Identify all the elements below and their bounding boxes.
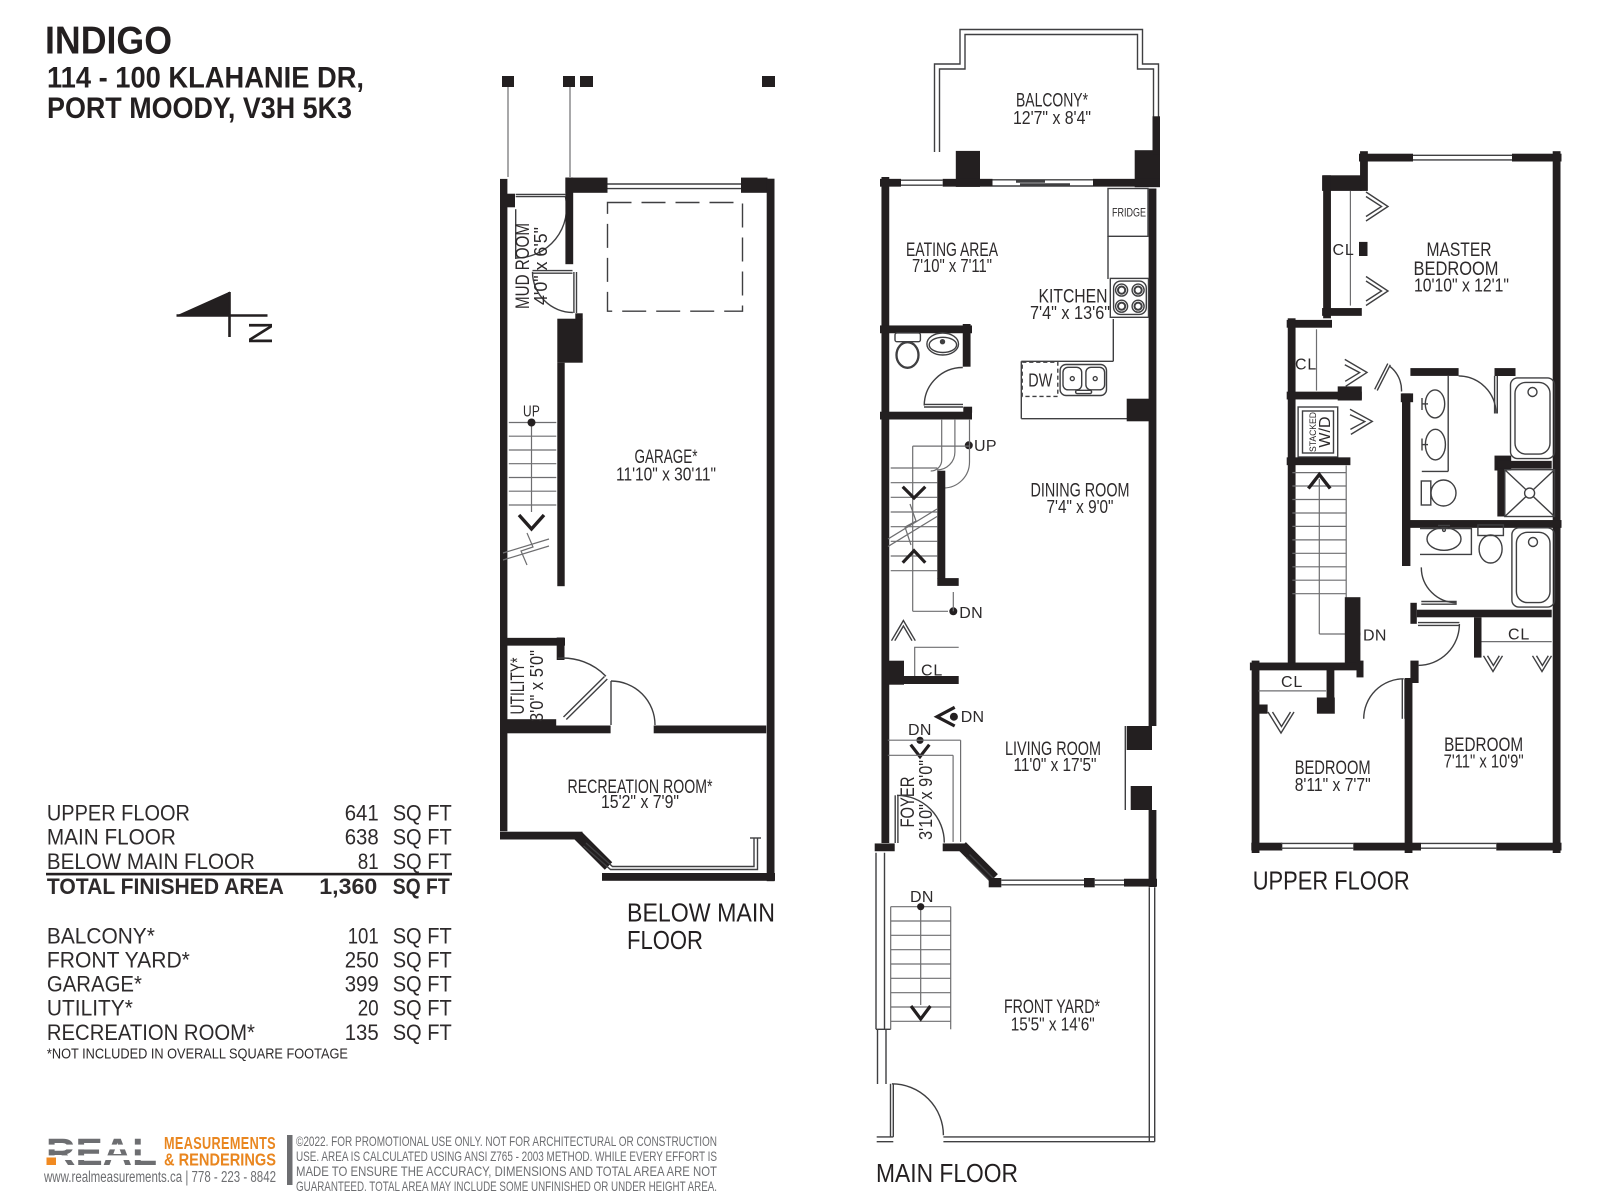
svg-text:FRIDGE: FRIDGE: [1112, 208, 1146, 220]
svg-text:INDIGO: INDIGO: [45, 20, 172, 63]
svg-text:UP: UP: [974, 438, 997, 455]
svg-text:SQ FT: SQ FT: [393, 1020, 452, 1045]
svg-text:11'10" x 30'11": 11'10" x 30'11": [616, 465, 716, 485]
svg-text:UPPER FLOOR: UPPER FLOOR: [1253, 866, 1410, 896]
svg-text:1,360: 1,360: [319, 874, 377, 899]
svg-text:©2022. FOR PROMOTIONAL USE ONL: ©2022. FOR PROMOTIONAL USE ONLY. NOT FOR…: [296, 1134, 717, 1149]
svg-text:USE. AREA IS CALCULATED USING: USE. AREA IS CALCULATED USING ANSI Z765 …: [296, 1149, 717, 1164]
svg-text:20: 20: [358, 996, 379, 1021]
svg-text:SQ FT: SQ FT: [393, 948, 452, 973]
svg-text:399: 399: [345, 972, 379, 997]
svg-text:CL: CL: [1281, 674, 1303, 691]
svg-text:7'4" x 9'0": 7'4" x 9'0": [1047, 497, 1114, 517]
svg-text:CL: CL: [1508, 627, 1530, 644]
svg-text:SQ FT: SQ FT: [393, 825, 452, 850]
svg-text:SQ FT: SQ FT: [393, 849, 452, 874]
svg-text:SQ FT: SQ FT: [393, 874, 450, 899]
svg-text:BELOW MAIN: BELOW MAIN: [627, 898, 775, 928]
svg-text:641: 641: [345, 801, 379, 826]
svg-text:DN: DN: [1363, 628, 1387, 645]
svg-text:81: 81: [358, 849, 379, 874]
svg-text:MAIN FLOOR: MAIN FLOOR: [47, 825, 176, 850]
svg-text:DN: DN: [961, 709, 985, 726]
svg-text:TOTAL FINISHED AREA: TOTAL FINISHED AREA: [47, 874, 284, 899]
svg-text:www.realmeasurements.ca | 778: www.realmeasurements.ca | 778 - 223 - 88…: [43, 1169, 276, 1186]
svg-text:7'4" x 13'6": 7'4" x 13'6": [1030, 303, 1110, 323]
svg-text:UTILITY*: UTILITY*: [47, 996, 133, 1021]
svg-text:RECREATION ROOM*: RECREATION ROOM*: [47, 1020, 255, 1045]
svg-text:CL: CL: [1333, 242, 1355, 259]
svg-text:3'0" x 5'0": 3'0" x 5'0": [527, 650, 547, 722]
svg-text:15'2" x 7'9": 15'2" x 7'9": [601, 792, 679, 812]
svg-text:SQ FT: SQ FT: [393, 972, 452, 997]
svg-text:15'5" x 14'6": 15'5" x 14'6": [1011, 1015, 1095, 1035]
svg-text:CL: CL: [1295, 357, 1317, 374]
svg-text:12'7" x 8'4": 12'7" x 8'4": [1013, 108, 1091, 128]
svg-text:REAL: REAL: [46, 1132, 157, 1174]
svg-text:& RENDERINGS: & RENDERINGS: [164, 1150, 276, 1170]
svg-text:DW: DW: [1028, 371, 1052, 391]
svg-text:114 - 100 KLAHANIE DR,: 114 - 100 KLAHANIE DR,: [47, 62, 364, 95]
svg-text:FRONT YARD*: FRONT YARD*: [47, 948, 190, 973]
svg-text:DN: DN: [959, 605, 983, 622]
svg-text:7'11" x 10'9": 7'11" x 10'9": [1444, 752, 1524, 772]
svg-text:UP: UP: [523, 404, 540, 421]
svg-text:SQ FT: SQ FT: [393, 923, 452, 948]
svg-text:7'10" x 7'11": 7'10" x 7'11": [912, 256, 992, 276]
svg-text:11'0" x 17'5": 11'0" x 17'5": [1014, 755, 1097, 775]
svg-text:*NOT INCLUDED IN OVERALL SQUAR: *NOT INCLUDED IN OVERALL SQUARE FOOTAGE: [47, 1047, 348, 1063]
svg-text:135: 135: [345, 1020, 379, 1045]
svg-text:N: N: [242, 321, 279, 345]
svg-text:250: 250: [345, 948, 379, 973]
svg-text:8'11" x 7'7": 8'11" x 7'7": [1295, 775, 1371, 795]
svg-text:FLOOR: FLOOR: [627, 925, 703, 955]
svg-text:BALCONY*: BALCONY*: [47, 923, 155, 948]
svg-text:4'0" x 6'5": 4'0" x 6'5": [531, 227, 551, 305]
svg-text:GUARANTEED. TOTAL AREA MAY INC: GUARANTEED. TOTAL AREA MAY INCLUDE SOME …: [296, 1179, 717, 1194]
svg-text:UPPER FLOOR: UPPER FLOOR: [47, 801, 190, 826]
svg-text:SQ FT: SQ FT: [393, 801, 452, 826]
svg-text:10'10" x 12'1": 10'10" x 12'1": [1414, 276, 1509, 296]
svg-text:SQ FT: SQ FT: [393, 996, 452, 1021]
svg-text:BELOW MAIN FLOOR: BELOW MAIN FLOOR: [47, 849, 255, 874]
svg-text:UTILITY*: UTILITY*: [508, 657, 529, 714]
svg-text:MASTER: MASTER: [1427, 240, 1492, 261]
svg-text:638: 638: [345, 825, 379, 850]
svg-text:DN: DN: [908, 722, 932, 739]
svg-text:GARAGE*: GARAGE*: [47, 972, 142, 997]
svg-text:MADE TO ENSURE THE ACCURAC: MADE TO ENSURE THE ACCURACY, DIMENSIONS …: [296, 1164, 717, 1179]
svg-text:W/D: W/D: [1317, 416, 1334, 447]
svg-text:PORT MOODY, V3H 5K3: PORT MOODY, V3H 5K3: [47, 92, 352, 125]
svg-text:101: 101: [348, 923, 379, 948]
svg-text:MAIN FLOOR: MAIN FLOOR: [876, 1158, 1018, 1188]
